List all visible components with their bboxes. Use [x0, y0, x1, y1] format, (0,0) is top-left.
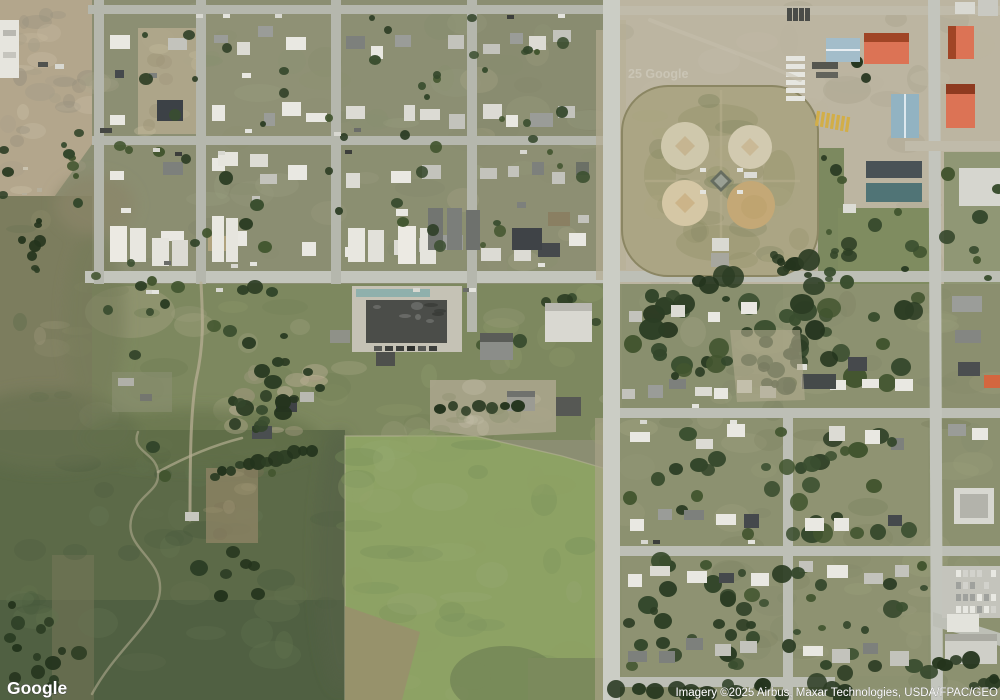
- svg-text:25 Google: 25 Google: [628, 67, 688, 81]
- svg-text:Google: Google: [7, 678, 68, 698]
- svg-text:Imagery ©2025 Airbus, Maxar Te: Imagery ©2025 Airbus, Maxar Technologies…: [675, 687, 998, 699]
